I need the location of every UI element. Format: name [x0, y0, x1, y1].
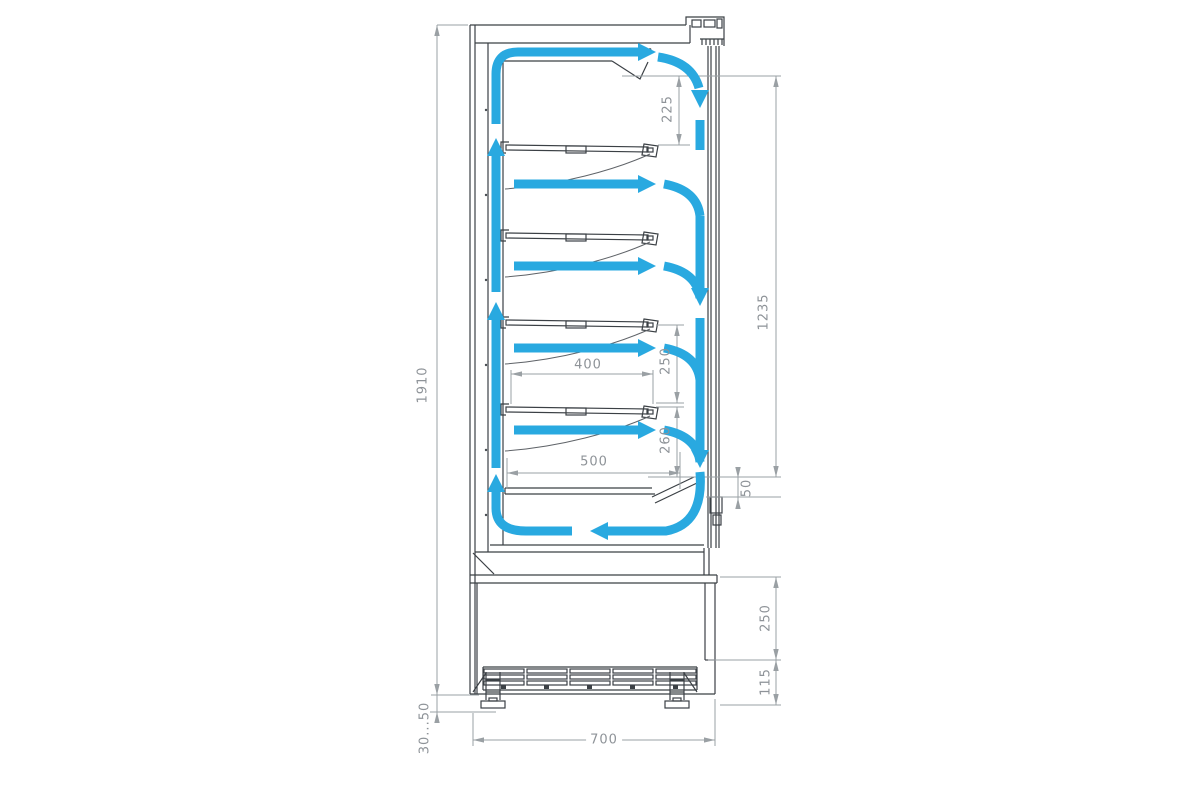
arrowhead-right	[638, 421, 656, 439]
technical-drawing-canvas: 1910 30...50 700 225 1235 250 400 260 50…	[0, 0, 1200, 800]
arrowhead-up	[487, 302, 505, 320]
arrowhead-right	[638, 257, 656, 275]
dim-label-overall-height: 1910	[417, 366, 430, 403]
arrowhead-left	[590, 522, 608, 540]
arrowhead-down	[691, 288, 709, 306]
ventilation-grille	[483, 667, 697, 690]
dim-label-depth: 700	[586, 734, 622, 747]
arrowhead-up	[487, 138, 505, 156]
arrowhead-right	[638, 339, 656, 357]
dim-label-shelf-gap-upper: 250	[660, 347, 673, 375]
dim-label-shelf-gap-lower: 260	[660, 426, 673, 454]
dim-label-top-air-gap: 225	[662, 95, 675, 123]
dim-label-bottom-deck-depth: 500	[580, 456, 608, 469]
airflow-across-top-duct	[496, 52, 638, 124]
arrowhead-down	[691, 90, 709, 108]
dim-label-grille-height: 115	[760, 668, 773, 696]
dim-label-air-intake: 50	[741, 479, 754, 498]
base-unit	[473, 667, 697, 708]
arrowhead-up	[487, 474, 505, 492]
dim-label-base-height: 250	[760, 604, 773, 632]
arrowhead-right	[638, 175, 656, 193]
dimension-annotations	[430, 25, 781, 746]
dim-label-opening-height: 1235	[758, 293, 771, 330]
dim-label-leg-adjustment: 30...50	[419, 702, 432, 754]
cross-section-drawing	[0, 0, 1200, 800]
dim-label-shelf-depth: 400	[574, 359, 602, 372]
airflow-connector-1	[664, 184, 700, 216]
arrowhead-down	[691, 450, 709, 468]
arrowhead-right	[638, 43, 656, 61]
